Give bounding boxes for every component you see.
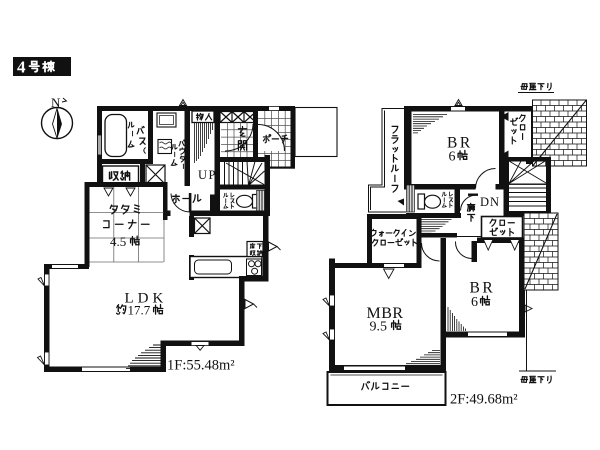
svg-text:N: N [51,95,61,110]
svg-text:9.5: 9.5 [370,320,388,335]
svg-text:DN: DN [480,195,500,209]
svg-text:4: 4 [17,58,26,77]
svg-text:UP: UP [198,168,217,182]
svg-text:17.7: 17.7 [128,303,151,318]
svg-text:4.5: 4.5 [110,234,126,249]
svg-text:2F:49.68m²: 2F:49.68m² [450,392,518,408]
svg-text:6: 6 [449,150,456,165]
svg-text:1F:55.48m²: 1F:55.48m² [167,358,235,374]
svg-text:6: 6 [471,295,478,310]
svg-text:BR: BR [470,280,496,297]
